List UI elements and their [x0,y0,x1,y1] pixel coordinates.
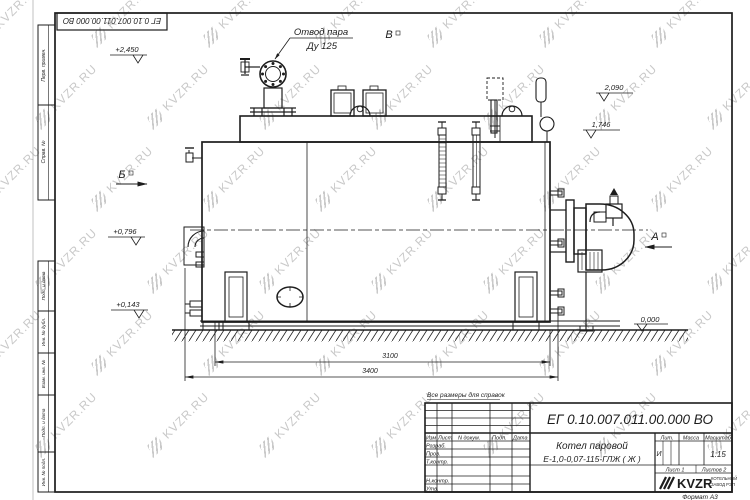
tb-scale: 1:15 [710,450,726,459]
front-fittings [184,148,204,316]
tb-lit-value: И [656,451,662,458]
tb-massa-label: Масса [683,436,699,442]
dimension-overall: 3400 [362,368,378,375]
callout-line2: Ду 125 [306,41,338,52]
elevation-right-upper: 2,090 [604,83,625,92]
valve-bolts [261,62,285,86]
elevation-left-lower: +0,143 [116,300,140,309]
tb-header-ndoc: N докум. [458,436,480,442]
tb-sheets: Листов 2 [701,468,727,474]
tb-lit-label: Лит. [660,436,674,442]
kvzr-logo-text: KVZR [677,476,713,491]
kvzr-logo-sub1: КОТЕЛЬНЫЙ [711,476,737,481]
elevation-left-upper: +0,796 [113,227,137,236]
strip-label: Справ. № [41,140,47,163]
tb-product-name-line1: Котел паровой [556,441,628,452]
format-label: Формат А3 [682,494,718,500]
strip-label: Инв. № дубл. [41,318,46,346]
strip-label: Подп. и дата [41,271,46,300]
callout-line1: Отвод пара [294,27,348,38]
strip-label: Перв. примен. [41,48,47,81]
note-text: Все размеры для справок [427,391,506,399]
elevation-marks: +2,450 +0,796 +0,143 2,090 1,746 0,000 [108,45,668,331]
steam-outlet-callout: Отвод пара Ду 125 [275,27,353,59]
elevation-right-lower: 1,746 [592,120,612,129]
boiler-body [190,116,648,326]
boiler-drawing-svg: Перв. примен. Справ. № Подп. и дата Инв.… [0,0,750,500]
side-strip: Перв. примен. Справ. № Подп. и дата Инв.… [38,25,55,492]
drawing-sheet: KVZR.RUKVZR.RUKVZR.RUKVZR.RUKVZR.RUKVZR.… [0,0,750,500]
title-block: Изм Лист N докум. Подп. Дата Разраб. Про… [425,403,737,493]
reference-note: Все размеры для справок [427,391,506,400]
ground-line [172,330,688,342]
top-doc-number-box: ЕГ 0.10.007.011.00.000 ВО [57,13,167,30]
view-letter-a: А [650,231,658,243]
tb-row-nkontr: Н.контр. [426,479,449,485]
strip-label: Подп. и дата [41,408,46,437]
view-arrows: Б В А [116,29,672,247]
view-letter-v: В [385,29,392,41]
kvzr-logo: KVZR КОТЕЛЬНЫЙ ЗАВОД РЭП [660,476,737,491]
dimension-inner: 3100 [382,353,398,360]
water-level-gauges [438,122,480,200]
lifting-lugs [350,106,522,116]
tb-product-name-line2: Е-1,0-0,07-115-ГЛЖ ( Ж ) [543,454,641,464]
tb-doc-number: ЕГ 0.10.007.011.00.000 ВО [547,412,713,427]
tb-row-utv: Утв. [425,487,439,493]
steam-outlet-valve [240,59,296,116]
burner-assembly [550,188,634,331]
tb-masshtab-label: Масштаб [705,436,732,442]
tb-header-izm: Изм [426,436,436,442]
kvzr-logo-sub2: ЗАВОД РЭП [711,482,735,487]
tb-row-tkontr: Т.контр. [426,460,448,466]
tb-row-razrab: Разраб. [426,444,446,450]
elevation-top: +2,450 [115,45,139,54]
strip-label: Взам. инв. № [41,360,46,388]
tb-header-list: Лист [437,436,453,442]
elevation-ground: 0,000 [641,315,661,324]
strip-label: Инв. № подл. [41,458,46,487]
dimension-lines: 3100 3400 [185,268,558,381]
tb-sheet: Лист 1 [665,468,685,474]
view-letter-b: Б [118,169,125,181]
tb-header-podp: Подп. [492,436,507,442]
tb-header-data: Дата [512,436,528,442]
tb-row-prov: Пров. [426,452,441,458]
top-doc-number: ЕГ 0.10.007.011.00.000 ВО [63,16,161,25]
